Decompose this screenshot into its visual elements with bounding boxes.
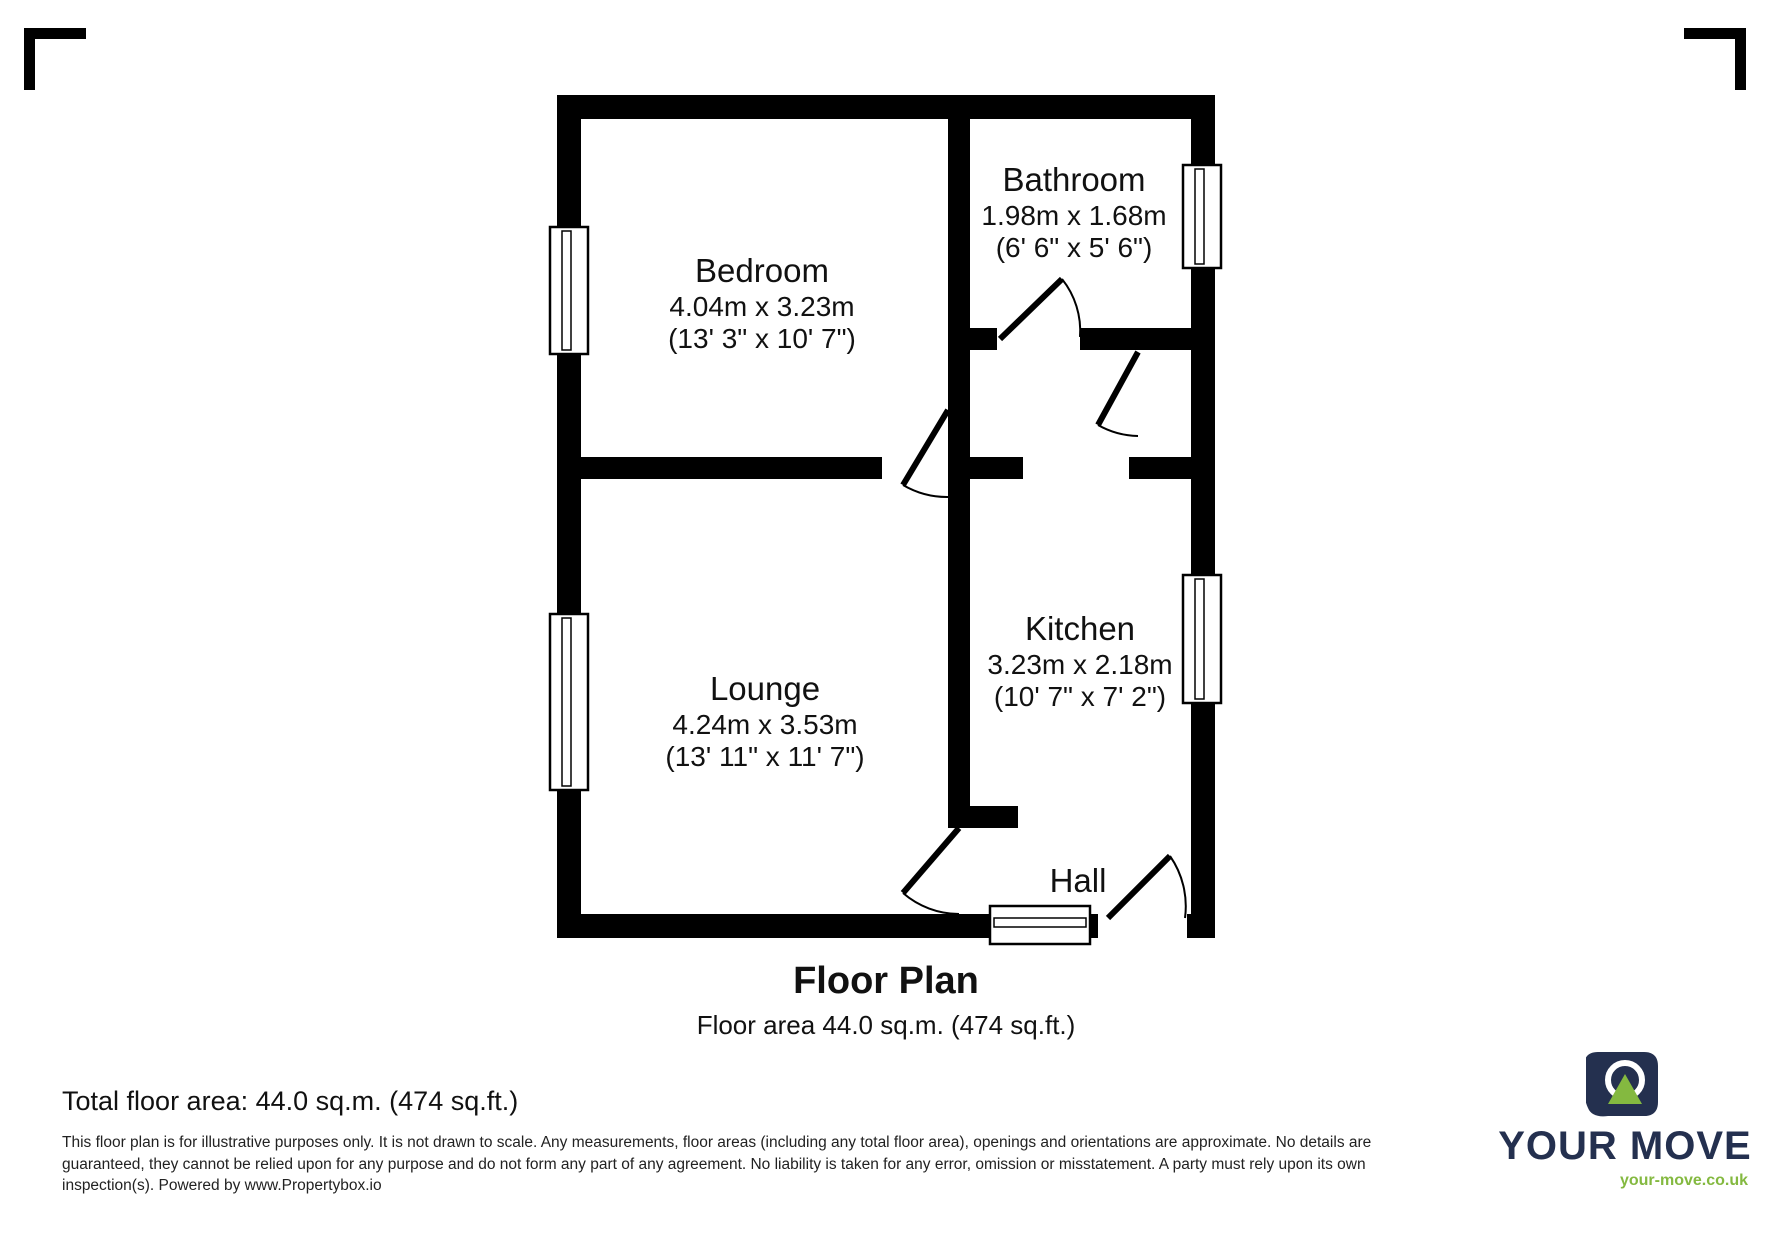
wall-kitchen-bottom-stub: [948, 806, 1018, 828]
doors: [903, 279, 1186, 918]
lounge-door: [903, 828, 959, 914]
hall-label: Hall: [1050, 862, 1107, 899]
lounge-window: [550, 614, 588, 790]
page-title: Floor Plan: [306, 960, 1466, 1003]
wall-top: [557, 95, 1215, 119]
bathroom-label: Bathroom: [1002, 161, 1145, 198]
wall-bedroom-bottom: [557, 457, 882, 479]
bedroom-door: [903, 410, 948, 497]
kitchen-window: [1183, 575, 1221, 703]
your-move-wordmark: YOUR MOVE: [1498, 1124, 1752, 1169]
your-move-url: your-move.co.uk: [1498, 1172, 1752, 1190]
wall-bathroom-bottom-right: [1080, 328, 1191, 350]
bedroom-dims-imperial: (13' 3" x 10' 7"): [668, 323, 856, 354]
lounge-label: Lounge: [710, 670, 820, 707]
bedroom-label: Bedroom: [695, 252, 829, 289]
bathroom-dims-imperial: (6' 6" x 5' 6"): [996, 232, 1153, 263]
disclaimer-line-2: guaranteed, they cannot be relied upon f…: [62, 1154, 1462, 1176]
kitchen-label: Kitchen: [1025, 610, 1135, 647]
bedroom-dims-metric: 4.04m x 3.23m: [669, 291, 854, 322]
lounge-dims-metric: 4.24m x 3.53m: [672, 709, 857, 740]
disclaimer: This floor plan is for illustrative purp…: [62, 1132, 1462, 1197]
floor-area-subtitle: Floor area 44.0 sq.m. (474 sq.ft.): [306, 1010, 1466, 1041]
disclaimer-line-3: inspection(s). Powered by www.Propertybo…: [62, 1175, 1462, 1197]
bedroom-window: [550, 227, 588, 354]
your-move-logo: YOUR MOVE your-move.co.uk: [1498, 1046, 1752, 1190]
kitchen-dims-imperial: (10' 7" x 7' 2"): [994, 681, 1166, 712]
total-floor-area: Total floor area: 44.0 sq.m. (474 sq.ft.…: [62, 1086, 518, 1117]
hall-window: [990, 906, 1090, 944]
front-door: [1108, 856, 1186, 918]
kitchen-dims-metric: 3.23m x 2.18m: [987, 649, 1172, 680]
closet-door: [1098, 352, 1138, 436]
wall-bathroom-bottom-left: [948, 328, 997, 350]
your-move-pin-icon: [1586, 1046, 1664, 1122]
lounge-dims-imperial: (13' 11" x 11' 7"): [665, 741, 864, 772]
bathroom-window: [1183, 165, 1221, 268]
wall-left: [557, 95, 581, 938]
wall-divider: [948, 119, 970, 828]
disclaimer-line-1: This floor plan is for illustrative purp…: [62, 1132, 1462, 1154]
bathroom-door: [1000, 279, 1080, 339]
windows: [550, 165, 1221, 944]
wall-hall-stub: [970, 457, 1023, 479]
bathroom-dims-metric: 1.98m x 1.68m: [981, 200, 1166, 231]
wall-kitchen-top-right: [1129, 457, 1191, 479]
room-labels: Bedroom 4.04m x 3.23m (13' 3" x 10' 7") …: [665, 161, 1172, 899]
